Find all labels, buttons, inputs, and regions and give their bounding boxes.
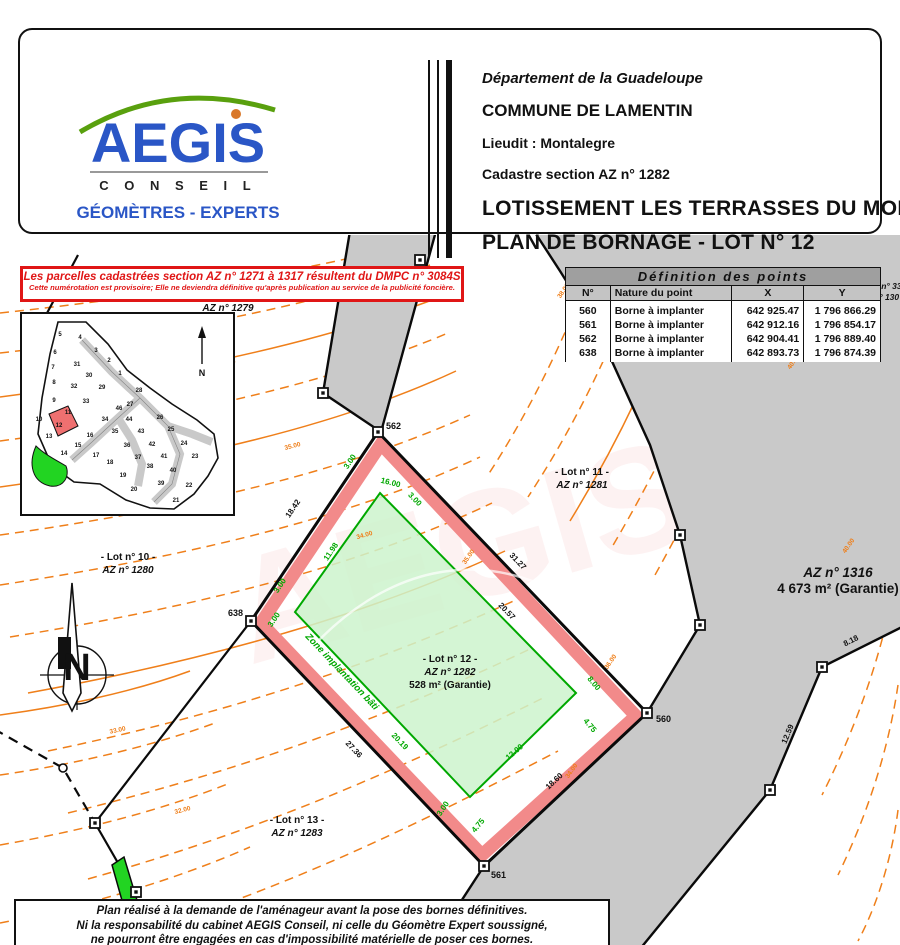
lot12-area: 528 m² (Garantie) xyxy=(409,680,491,691)
svg-text:32.00: 32.00 xyxy=(174,805,192,816)
col-nature: Nature du point xyxy=(610,286,732,301)
svg-text:36.00: 36.00 xyxy=(603,653,618,671)
svg-text:38: 38 xyxy=(147,464,154,470)
table-row: 562Borne à implanter 642 904.411 796 889… xyxy=(566,332,881,346)
svg-text:14: 14 xyxy=(61,451,68,457)
point-label-638: 638 xyxy=(228,608,243,618)
plan-title-line1: LOTISSEMENT LES TERRASSES DU MONT xyxy=(482,197,900,221)
svg-text:42: 42 xyxy=(149,442,156,448)
point-label-562: 562 xyxy=(386,421,401,431)
svg-text:11: 11 xyxy=(65,410,72,416)
lieudit-line: Lieudit : Montalegre xyxy=(482,135,900,151)
svg-text:36: 36 xyxy=(124,443,131,449)
notice-line2: Cette numérotation est provisoire; Elle … xyxy=(23,283,461,292)
svg-text:20.19: 20.19 xyxy=(390,731,411,752)
point-label-560: 560 xyxy=(656,714,671,724)
inset-north-arrow: N xyxy=(198,326,206,378)
col-y: Y xyxy=(804,286,881,301)
plan-title-line2: PLAN DE BORNAGE - LOT N° 12 xyxy=(482,231,900,255)
points-definition-table: Définition des points N° Nature du point… xyxy=(565,267,881,362)
svg-text:40: 40 xyxy=(170,468,177,474)
compass-n-label: N xyxy=(63,647,90,689)
commune-line: COMMUNE DE LAMENTIN xyxy=(482,101,900,121)
disclaimer-line3: ne pourront être engagées en cas d'impos… xyxy=(16,933,608,945)
lot10-az: AZ n° 1280 xyxy=(101,565,154,576)
svg-text:44: 44 xyxy=(126,417,133,423)
svg-text:4.75: 4.75 xyxy=(581,717,598,735)
col-x: X xyxy=(732,286,804,301)
svg-text:16: 16 xyxy=(87,433,94,439)
titleblock-text: Département de la Guadeloupe COMMUNE DE … xyxy=(482,70,900,265)
svg-text:15: 15 xyxy=(75,443,82,449)
north-compass: N xyxy=(40,583,114,711)
lot11-az: AZ n° 1281 xyxy=(555,480,608,491)
svg-text:10: 10 xyxy=(36,417,43,423)
disclaimer-line1: Plan réalisé à la demande de l'aménageur… xyxy=(16,904,608,919)
svg-text:37: 37 xyxy=(135,455,142,461)
cadastre-notice: Les parcelles cadastrées section AZ n° 1… xyxy=(20,266,464,302)
points-table-title: Définition des points xyxy=(566,268,881,286)
lot10-label: - Lot n° 10 - xyxy=(101,552,156,563)
lot11-label: - Lot n° 11 - xyxy=(555,467,609,478)
svg-text:25: 25 xyxy=(168,427,175,433)
svg-text:30: 30 xyxy=(86,373,93,379)
svg-text:35: 35 xyxy=(112,429,119,435)
logo-wordmark: AEGIS xyxy=(91,111,265,174)
table-row: 560Borne à implanter 642 925.471 796 866… xyxy=(566,301,881,319)
department-line: Département de la Guadeloupe xyxy=(482,70,900,87)
svg-text:13: 13 xyxy=(46,434,53,440)
svg-text:19: 19 xyxy=(120,473,127,479)
lot13-az: AZ n° 1283 xyxy=(270,828,323,839)
plan-sheet: AEGIS xyxy=(0,0,900,945)
lot12-label: - Lot n° 12 - xyxy=(423,654,478,665)
aegis-logo: AEGIS C O N S E I L GÉOMÈTRES - EXPERTS xyxy=(50,70,320,250)
svg-text:3.00: 3.00 xyxy=(342,452,358,470)
svg-text:24: 24 xyxy=(181,441,188,447)
notice-line1: Les parcelles cadastrées section AZ n° 1… xyxy=(23,271,461,283)
svg-text:29: 29 xyxy=(99,385,106,391)
svg-text:32: 32 xyxy=(71,384,78,390)
col-num: N° xyxy=(566,286,611,301)
cadastre-line: Cadastre section AZ n° 1282 xyxy=(482,166,900,182)
subdivision-inset-map: N 5 4 3 2 1 6 7 8 9 10 31 30 32 29 33 28… xyxy=(20,312,235,516)
point-label-561: 561 xyxy=(491,870,506,880)
az1316-label: AZ n° 1316 xyxy=(802,565,873,580)
table-row: 561Borne à implanter 642 912.161 796 854… xyxy=(566,318,881,332)
az1316-area: 4 673 m² (Garantie) xyxy=(777,581,899,596)
svg-text:21: 21 xyxy=(173,498,180,504)
svg-text:22: 22 xyxy=(186,483,193,489)
svg-text:23: 23 xyxy=(192,454,199,460)
svg-text:4.75: 4.75 xyxy=(470,816,487,834)
svg-text:17: 17 xyxy=(93,453,100,459)
footer-disclaimer: Plan réalisé à la demande de l'aménageur… xyxy=(14,899,610,945)
svg-text:35.00: 35.00 xyxy=(284,441,302,452)
svg-text:27: 27 xyxy=(127,402,134,408)
title-block: AEGIS C O N S E I L GÉOMÈTRES - EXPERTS … xyxy=(18,28,882,234)
svg-text:46: 46 xyxy=(116,406,123,412)
svg-text:20: 20 xyxy=(131,487,138,493)
svg-text:28: 28 xyxy=(136,388,143,394)
disclaimer-line2: Ni la responsabilité du cabinet AEGIS Co… xyxy=(16,919,608,934)
lot12-az: AZ n° 1282 xyxy=(423,667,476,678)
titleblock-divider xyxy=(428,60,459,258)
logo-tagline: GÉOMÈTRES - EXPERTS xyxy=(76,203,279,222)
svg-text:18: 18 xyxy=(107,460,114,466)
logo-i-dot xyxy=(231,109,241,119)
svg-text:41: 41 xyxy=(161,454,168,460)
logo-conseil: C O N S E I L xyxy=(99,178,256,193)
table-row: 638Borne à implanter 642 893.731 796 874… xyxy=(566,346,881,362)
svg-text:12: 12 xyxy=(56,423,63,429)
svg-text:39: 39 xyxy=(158,481,165,487)
inset-drawing: N 5 4 3 2 1 6 7 8 9 10 31 30 32 29 33 28… xyxy=(22,314,229,510)
lot13-label: - Lot n° 13 - xyxy=(270,815,325,826)
svg-text:34: 34 xyxy=(102,417,109,423)
svg-text:43: 43 xyxy=(138,429,145,435)
svg-text:31: 31 xyxy=(74,362,81,368)
svg-text:27.36: 27.36 xyxy=(344,739,365,760)
svg-text:26: 26 xyxy=(157,415,164,421)
svg-text:N: N xyxy=(199,368,206,378)
svg-text:33: 33 xyxy=(83,399,90,405)
